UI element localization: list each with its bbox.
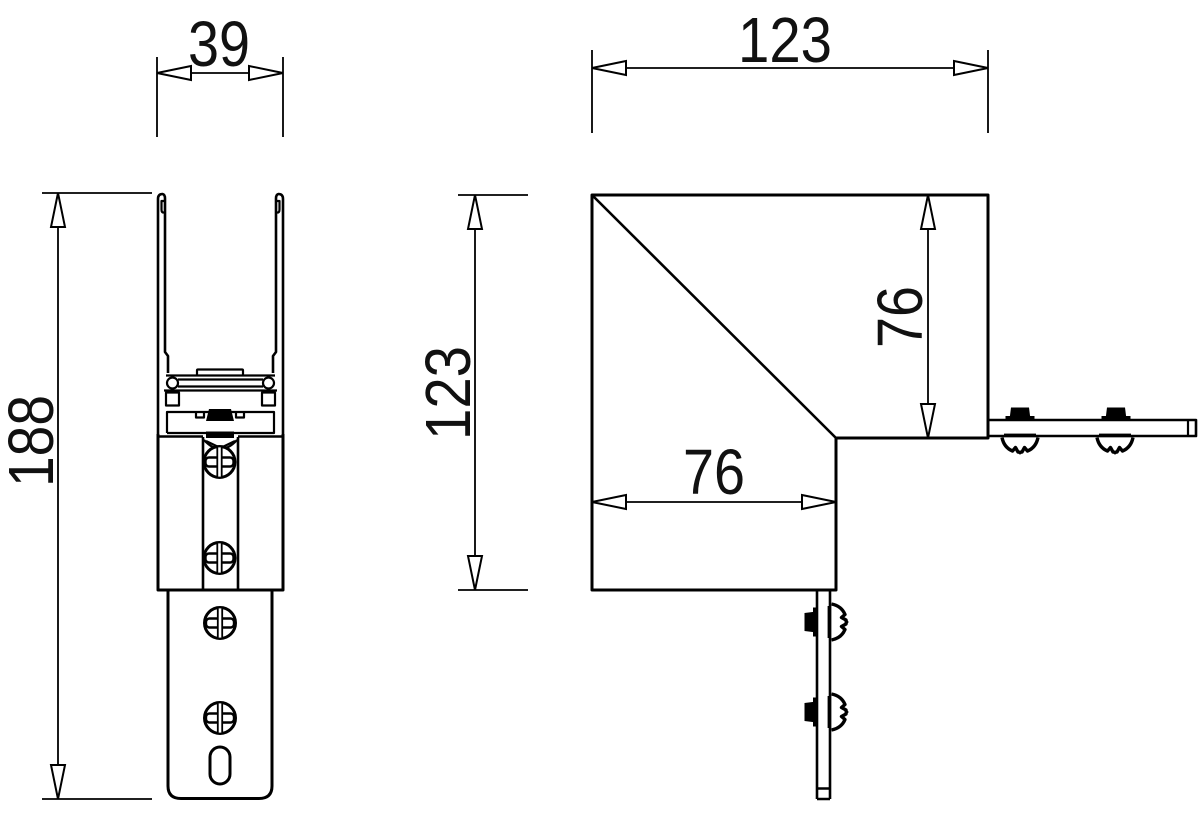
roller-left xyxy=(167,378,178,389)
technical-drawing-canvas: 39 188 123 123 76 76 xyxy=(0,0,1200,818)
clamp-screw-lower xyxy=(204,543,235,574)
arrowhead xyxy=(51,193,65,227)
mount-screw-upper xyxy=(205,608,236,639)
dim-side-inner-width: 76 xyxy=(592,436,836,509)
roller-bar xyxy=(178,380,263,387)
dim-side-height: 123 xyxy=(412,195,528,590)
arrowhead xyxy=(592,495,626,509)
plate-nut-1 xyxy=(805,608,818,637)
arrowhead xyxy=(802,495,836,509)
arrowhead xyxy=(51,765,65,799)
arrowhead xyxy=(468,195,482,229)
dim-front-width: 39 xyxy=(157,8,283,137)
arrowhead xyxy=(954,61,988,75)
dim-label-side-width: 123 xyxy=(738,4,832,76)
clamp-nut xyxy=(206,409,234,421)
mount-slot xyxy=(210,747,230,784)
arrowhead xyxy=(468,556,482,590)
dim-label-front-height: 188 xyxy=(0,395,67,487)
dim-side-width: 123 xyxy=(592,4,988,133)
arm-nut-2 xyxy=(1102,408,1131,421)
dim-label-side-inner-width: 76 xyxy=(683,436,745,508)
plate-nut-2 xyxy=(805,698,818,727)
channel-nut xyxy=(206,432,234,439)
dim-label-side-inner-height: 76 xyxy=(864,286,936,348)
mount-screw-lower xyxy=(205,703,236,734)
housing-block-left xyxy=(166,393,179,406)
front-view xyxy=(158,194,283,799)
arrowhead xyxy=(157,66,191,80)
technical-drawing-svg: 39 188 123 123 76 76 xyxy=(0,0,1200,818)
dim-side-inner-height: 76 xyxy=(864,195,936,438)
arrowhead xyxy=(921,404,935,438)
roller-right xyxy=(263,378,274,389)
clamp-screw-upper xyxy=(204,447,235,478)
arrowhead xyxy=(249,66,283,80)
arrowhead xyxy=(921,195,935,229)
arm-bolt-head-1 xyxy=(1002,434,1038,455)
arrowhead xyxy=(592,61,626,75)
arm-bolt-head-2 xyxy=(1097,434,1133,455)
plate-bolt-head-2 xyxy=(828,694,849,730)
arm-nut-1 xyxy=(1006,408,1035,421)
dim-front-height: 188 xyxy=(0,193,152,799)
dim-label-front-width: 39 xyxy=(188,8,250,80)
plate-bolt-head-1 xyxy=(828,604,849,640)
housing-block-right xyxy=(262,393,275,406)
dim-label-side-height: 123 xyxy=(412,346,484,440)
diagonal-edge xyxy=(592,195,836,438)
